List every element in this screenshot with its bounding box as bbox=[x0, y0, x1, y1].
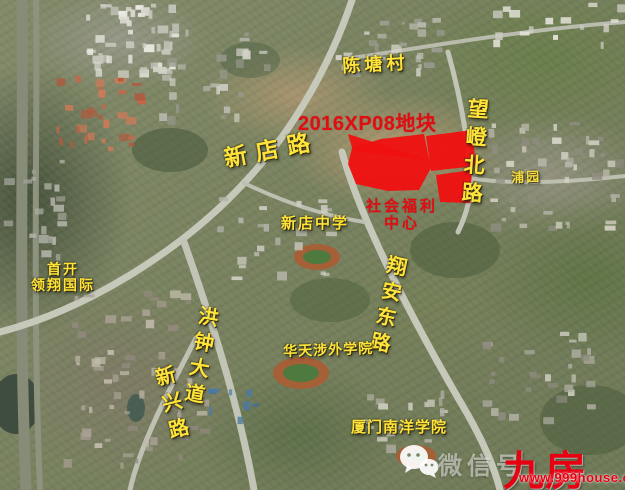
village-label-chentang: 陈塘村 bbox=[342, 54, 409, 76]
school-label-xindian-middle: 新店中学 bbox=[281, 216, 349, 232]
welfare-center-line2: 中心 bbox=[366, 215, 438, 232]
parcel-polygons bbox=[348, 130, 476, 203]
satellite-map: 2016XP08地块 社会福利 中心 新店路 望嶝北路 洪钟大道 新兴路 翔安东… bbox=[0, 0, 625, 490]
welfare-center-label: 社会福利 中心 bbox=[366, 198, 438, 233]
college-label-huatian: 华天涉外学院 bbox=[283, 341, 373, 359]
college-label-nanyang: 厦门南洋学院 bbox=[351, 420, 447, 436]
brand-url: www.999house.com bbox=[519, 470, 625, 485]
estate-label-line1: 首开 bbox=[24, 261, 102, 277]
village-label-puyuan: 浦园 bbox=[511, 170, 541, 185]
estate-label-line2: 领翔国际 bbox=[24, 277, 102, 293]
welfare-center-line1: 社会福利 bbox=[366, 198, 438, 215]
estate-label-shoukai: 首开 领翔国际 bbox=[24, 261, 102, 293]
wechat-icon bbox=[399, 443, 439, 481]
parcel-label: 2016XP08地块 bbox=[298, 114, 436, 135]
parcel-overlay bbox=[0, 0, 625, 490]
